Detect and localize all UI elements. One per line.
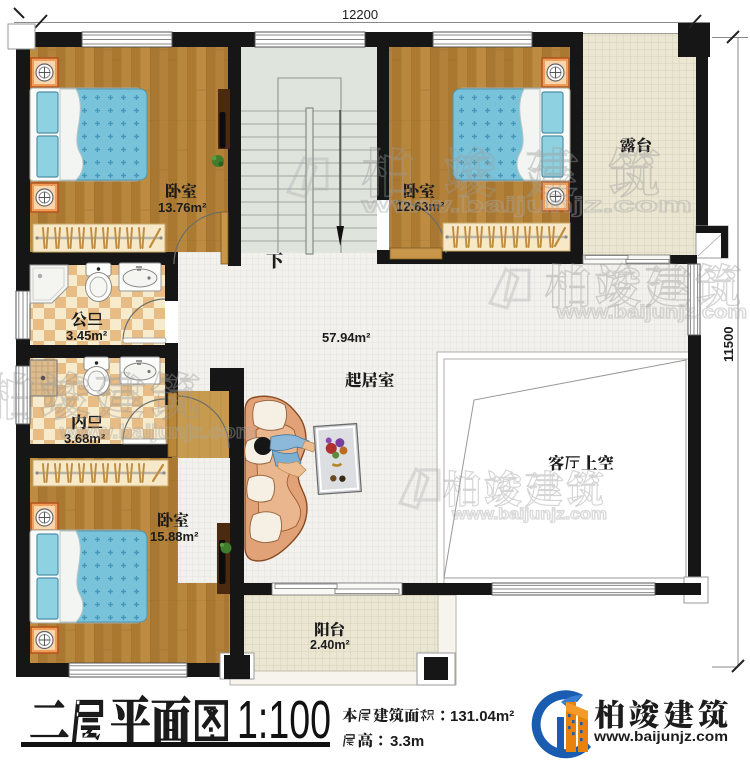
svg-text:2.40m²: 2.40m² — [310, 638, 350, 652]
svg-text:3.3m: 3.3m — [390, 733, 424, 750]
svg-text:15.88m²: 15.88m² — [150, 529, 199, 544]
svg-text:12200: 12200 — [342, 7, 378, 22]
svg-text:3.45m²: 3.45m² — [66, 328, 108, 343]
svg-text:www.baijunjz.com: www.baijunjz.com — [360, 194, 692, 217]
svg-text:www.baijunjz.com: www.baijunjz.com — [593, 728, 728, 744]
svg-text:57.94m²: 57.94m² — [322, 330, 371, 345]
svg-text:www.baijunjz.com: www.baijunjz.com — [556, 302, 747, 322]
svg-text:131.04m²: 131.04m² — [450, 708, 514, 725]
svg-text:1:100: 1:100 — [237, 690, 331, 750]
svg-text:www.baijunjz.com: www.baijunjz.com — [451, 506, 607, 523]
svg-text:www.baijunjz.com: www.baijunjz.com — [59, 422, 256, 443]
svg-text:13.76m²: 13.76m² — [158, 200, 207, 215]
svg-text:11500: 11500 — [721, 327, 736, 362]
